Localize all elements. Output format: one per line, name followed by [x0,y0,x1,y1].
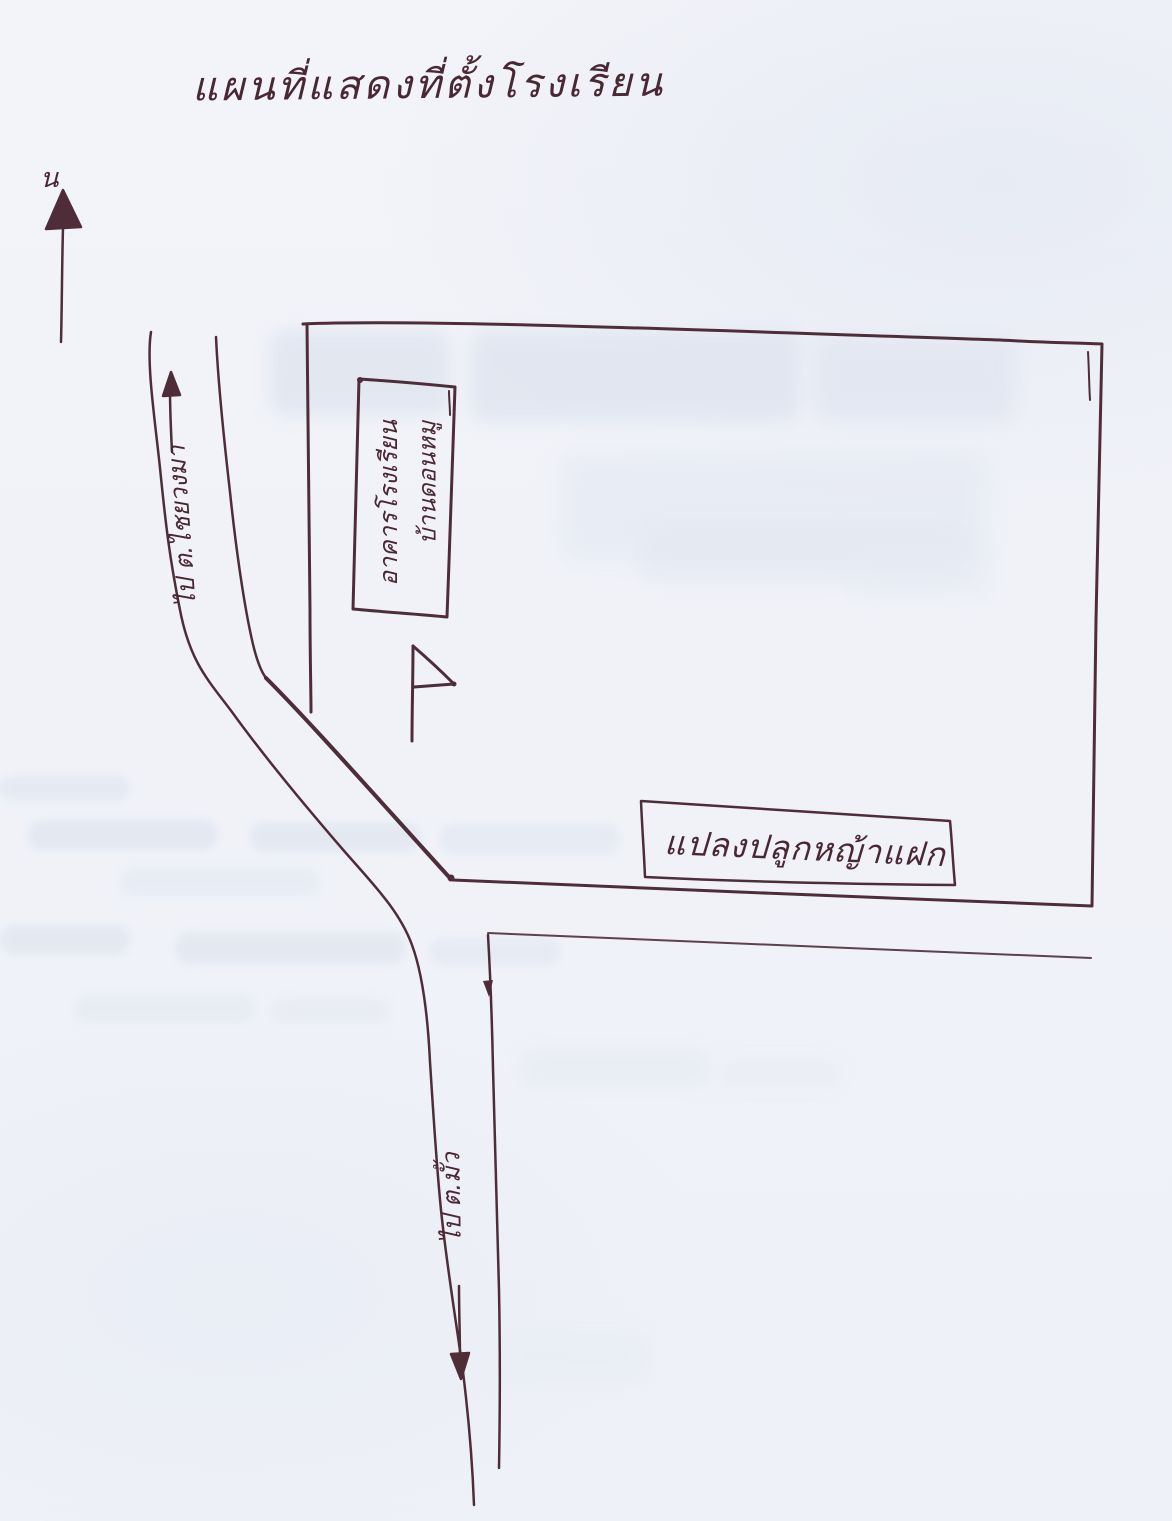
north-label: น [40,156,58,199]
scanned-map-page: แผนที่แสดงที่ตั้งโรงเรียน น ไป ต.ไชยวงมา… [0,0,1172,1521]
south-boundary-line [488,933,1091,958]
building-label-line1: อาคารโรงเรียน [369,373,409,633]
building-label-line2: บ้านดอนหมู [408,373,447,593]
north-arrow-icon [46,190,81,342]
flag-icon [412,646,457,741]
page-title: แผนที่แสดงที่ตั้งโรงเรียน [192,49,673,126]
south-road-label: ไป ต.มั้ว [430,1098,473,1299]
map-drawing [0,0,1172,1521]
